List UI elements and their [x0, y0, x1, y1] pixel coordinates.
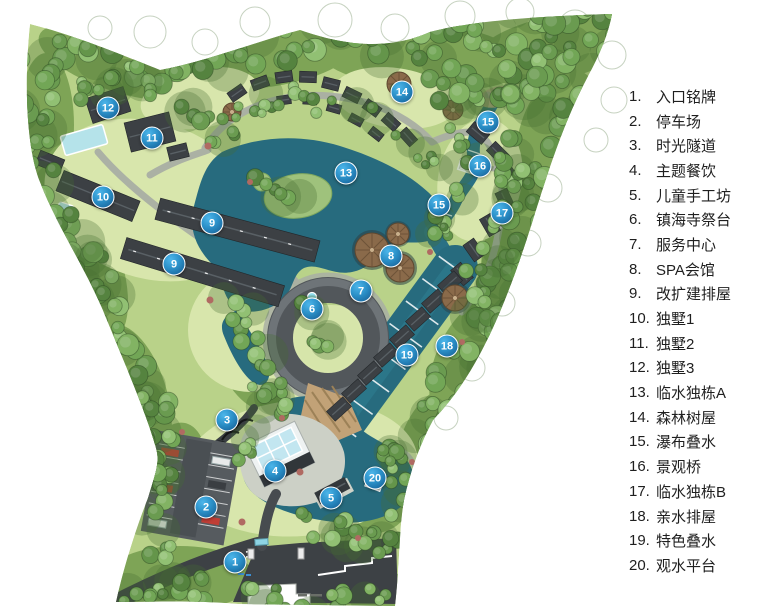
legend-number: 5. [629, 187, 656, 204]
legend-item: 19. 特色叠水 [629, 528, 775, 553]
legend-item: 16. 景观桥 [629, 454, 775, 479]
marker-number: 9 [209, 217, 215, 229]
legend-label: 临水独栋A [656, 382, 726, 403]
legend-item: 7. 服务中心 [629, 232, 775, 257]
legend-item: 1. 入口铭牌 [629, 84, 775, 109]
marker-number: 17 [496, 207, 508, 219]
marker-number: 16 [474, 160, 486, 172]
map-marker[interactable]: 18 [436, 335, 459, 358]
legend-label: 改扩建排屋 [656, 283, 731, 304]
marker-number: 13 [340, 167, 352, 179]
map-marker[interactable]: 16 [469, 155, 492, 178]
legend-number: 9. [629, 285, 656, 302]
legend-item: 13. 临水独栋A [629, 380, 775, 405]
map-marker[interactable]: 15 [477, 111, 500, 134]
map-marker[interactable]: 5 [320, 487, 343, 510]
legend-label: 停车场 [656, 111, 701, 132]
legend-label: 入口铭牌 [656, 86, 716, 107]
legend-label: 景观桥 [656, 456, 701, 477]
legend-label: 亲水排屋 [656, 506, 716, 527]
legend-number: 10. [629, 310, 656, 327]
marker-number: 8 [388, 250, 394, 262]
legend-number: 12. [629, 359, 656, 376]
legend-item: 10. 独墅1 [629, 306, 775, 331]
legend-item: 15. 瀑布叠水 [629, 430, 775, 455]
marker-number: 15 [482, 116, 494, 128]
marker-number: 3 [224, 414, 230, 426]
legend-item: 4. 主题餐饮 [629, 158, 775, 183]
legend-number: 2. [629, 113, 656, 130]
legend-number: 1. [629, 88, 656, 105]
legend-label: 独墅2 [656, 333, 694, 354]
legend-label: 特色叠水 [656, 530, 716, 551]
legend-label: 瀑布叠水 [656, 431, 716, 452]
map-marker[interactable]: 2 [195, 496, 218, 519]
legend-label: 主题餐饮 [656, 160, 716, 181]
legend-number: 4. [629, 162, 656, 179]
legend-label: 临水独栋B [656, 481, 726, 502]
legend-item: 8. SPA会馆 [629, 257, 775, 282]
map-marker[interactable]: 8 [380, 245, 403, 268]
legend-label: 镇海寺祭台 [656, 209, 731, 230]
map-marker[interactable]: 1 [224, 551, 247, 574]
legend: 1. 入口铭牌 2. 停车场 3. 时光隧道 4. 主题餐饮 5. 儿童手工坊 … [629, 84, 775, 578]
legend-label: 观水平台 [656, 555, 716, 576]
marker-number: 19 [401, 349, 413, 361]
map-marker[interactable]: 6 [301, 298, 324, 321]
map-marker[interactable]: 7 [350, 280, 373, 303]
map-marker[interactable]: 20 [364, 467, 387, 490]
map-marker[interactable]: 19 [396, 344, 419, 367]
marker-number: 7 [358, 285, 364, 297]
legend-label: SPA会馆 [656, 259, 715, 280]
map-marker[interactable]: 14 [391, 81, 414, 104]
legend-item: 20. 观水平台 [629, 553, 775, 578]
marker-number: 4 [272, 465, 278, 477]
marker-number: 2 [203, 501, 209, 513]
legend-number: 15. [629, 433, 656, 450]
legend-number: 13. [629, 384, 656, 401]
marker-number: 10 [97, 191, 109, 203]
resort-master-plan: 1 2 3 4 5 6 7 8 9 9 [0, 0, 775, 610]
legend-item: 2. 停车场 [629, 109, 775, 134]
legend-number: 11. [629, 335, 656, 352]
legend-number: 7. [629, 236, 656, 253]
legend-item: 14. 森林树屋 [629, 405, 775, 430]
legend-label: 独墅1 [656, 308, 694, 329]
marker-layer: 1 2 3 4 5 6 7 8 9 9 [0, 0, 630, 610]
legend-item: 12. 独墅3 [629, 356, 775, 381]
map-marker[interactable]: 9 [201, 212, 224, 235]
legend-item: 6. 镇海寺祭台 [629, 207, 775, 232]
map-marker[interactable]: 13 [335, 162, 358, 185]
marker-number: 1 [232, 556, 238, 568]
legend-number: 16. [629, 458, 656, 475]
legend-label: 森林树屋 [656, 407, 716, 428]
legend-label: 服务中心 [656, 234, 716, 255]
legend-item: 17. 临水独栋B [629, 479, 775, 504]
map-marker[interactable]: 9 [163, 253, 186, 276]
map-marker[interactable]: 4 [264, 460, 287, 483]
marker-number: 6 [309, 303, 315, 315]
marker-number: 15 [433, 199, 445, 211]
legend-label: 时光隧道 [656, 135, 716, 156]
map-marker[interactable]: 12 [97, 97, 120, 120]
legend-item: 11. 独墅2 [629, 331, 775, 356]
marker-number: 11 [146, 132, 158, 144]
map-marker[interactable]: 3 [216, 409, 239, 432]
map-marker[interactable]: 11 [141, 127, 164, 150]
legend-number: 3. [629, 137, 656, 154]
map-marker[interactable]: 15 [428, 194, 451, 217]
marker-number: 20 [369, 472, 381, 484]
map-marker[interactable]: 17 [491, 202, 514, 225]
legend-label: 独墅3 [656, 357, 694, 378]
legend-number: 6. [629, 211, 656, 228]
legend-item: 9. 改扩建排屋 [629, 282, 775, 307]
marker-number: 5 [328, 492, 334, 504]
marker-number: 18 [441, 340, 453, 352]
legend-number: 14. [629, 409, 656, 426]
map-marker[interactable]: 10 [92, 186, 115, 209]
legend-number: 17. [629, 483, 656, 500]
legend-label: 儿童手工坊 [656, 185, 731, 206]
legend-number: 8. [629, 261, 656, 278]
legend-number: 18. [629, 508, 656, 525]
legend-number: 19. [629, 532, 656, 549]
legend-item: 3. 时光隧道 [629, 133, 775, 158]
marker-number: 12 [102, 102, 114, 114]
legend-item: 18. 亲水排屋 [629, 504, 775, 529]
legend-item: 5. 儿童手工坊 [629, 183, 775, 208]
legend-number: 20. [629, 557, 656, 574]
marker-number: 9 [171, 258, 177, 270]
marker-number: 14 [396, 86, 408, 98]
